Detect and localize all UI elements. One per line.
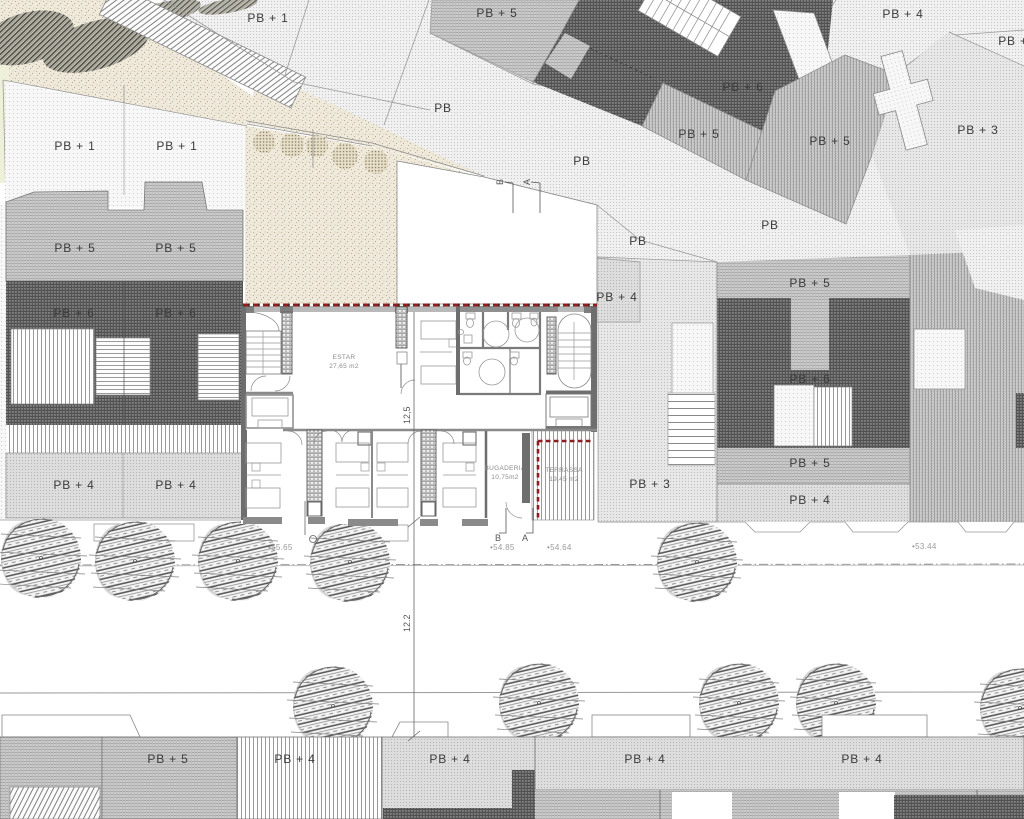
svg-text:TERRASSA: TERRASSA	[545, 467, 583, 474]
svg-text:PB: PB	[761, 218, 779, 232]
svg-text:PB + 3: PB + 3	[957, 123, 998, 137]
svg-text:12,5: 12,5	[402, 406, 412, 424]
svg-text:PB + 5: PB + 5	[678, 127, 719, 141]
svg-text:A: A	[522, 533, 528, 543]
svg-text:PB + 5: PB + 5	[789, 276, 830, 290]
svg-text:PB + 4: PB + 4	[155, 478, 196, 492]
svg-text:PB + 5: PB + 5	[155, 241, 196, 255]
svg-text:PB + 6: PB + 6	[53, 306, 94, 320]
svg-text:•55.65: •55.65	[268, 543, 293, 552]
svg-text:27,65 m2: 27,65 m2	[329, 363, 359, 370]
svg-text:PB + 4: PB + 4	[841, 752, 882, 766]
svg-text:PB + 6: PB + 6	[722, 80, 763, 94]
svg-text:PB + 5: PB + 5	[54, 241, 95, 255]
svg-text:PB + 3: PB + 3	[629, 477, 670, 491]
svg-text:PB + 5: PB + 5	[809, 134, 850, 148]
svg-text:PB + 1: PB + 1	[247, 11, 288, 25]
svg-text:PB + 5: PB + 5	[147, 752, 188, 766]
svg-text:PB + 4: PB + 4	[882, 7, 923, 21]
svg-text:PB: PB	[629, 234, 647, 248]
svg-text:PB + 5: PB + 5	[789, 456, 830, 470]
svg-text:ESTAR: ESTAR	[333, 354, 356, 361]
svg-text:B: B	[495, 179, 505, 185]
svg-text:PB + 5: PB + 5	[476, 6, 517, 20]
svg-text:PB + 4: PB + 4	[789, 493, 830, 507]
svg-text:B: B	[495, 533, 501, 543]
svg-text:•54.64: •54.64	[547, 543, 572, 552]
svg-text:19,45 m2: 19,45 m2	[549, 476, 579, 483]
svg-text:PB + 6: PB + 6	[789, 372, 830, 386]
svg-text:BUGADERIA: BUGADERIA	[485, 465, 526, 472]
svg-text:PB + 6: PB + 6	[155, 306, 196, 320]
svg-text:PB + 1: PB + 1	[156, 139, 197, 153]
svg-text:10,75m2: 10,75m2	[491, 474, 518, 481]
svg-text:A: A	[522, 179, 532, 185]
svg-text:PB +: PB +	[998, 34, 1024, 48]
svg-text:PB: PB	[434, 101, 452, 115]
svg-text:PB + 4: PB + 4	[596, 290, 637, 304]
svg-text:PB + 4: PB + 4	[274, 752, 315, 766]
svg-text:PB: PB	[573, 154, 591, 168]
svg-text:PB + 4: PB + 4	[53, 478, 94, 492]
svg-text:12.2: 12.2	[402, 614, 412, 632]
svg-text:PB + 4: PB + 4	[624, 752, 665, 766]
svg-text:PB + 4: PB + 4	[429, 752, 470, 766]
svg-text:PB + 1: PB + 1	[54, 139, 95, 153]
svg-text:•53.44: •53.44	[912, 542, 937, 551]
svg-text:•54.85: •54.85	[490, 543, 515, 552]
